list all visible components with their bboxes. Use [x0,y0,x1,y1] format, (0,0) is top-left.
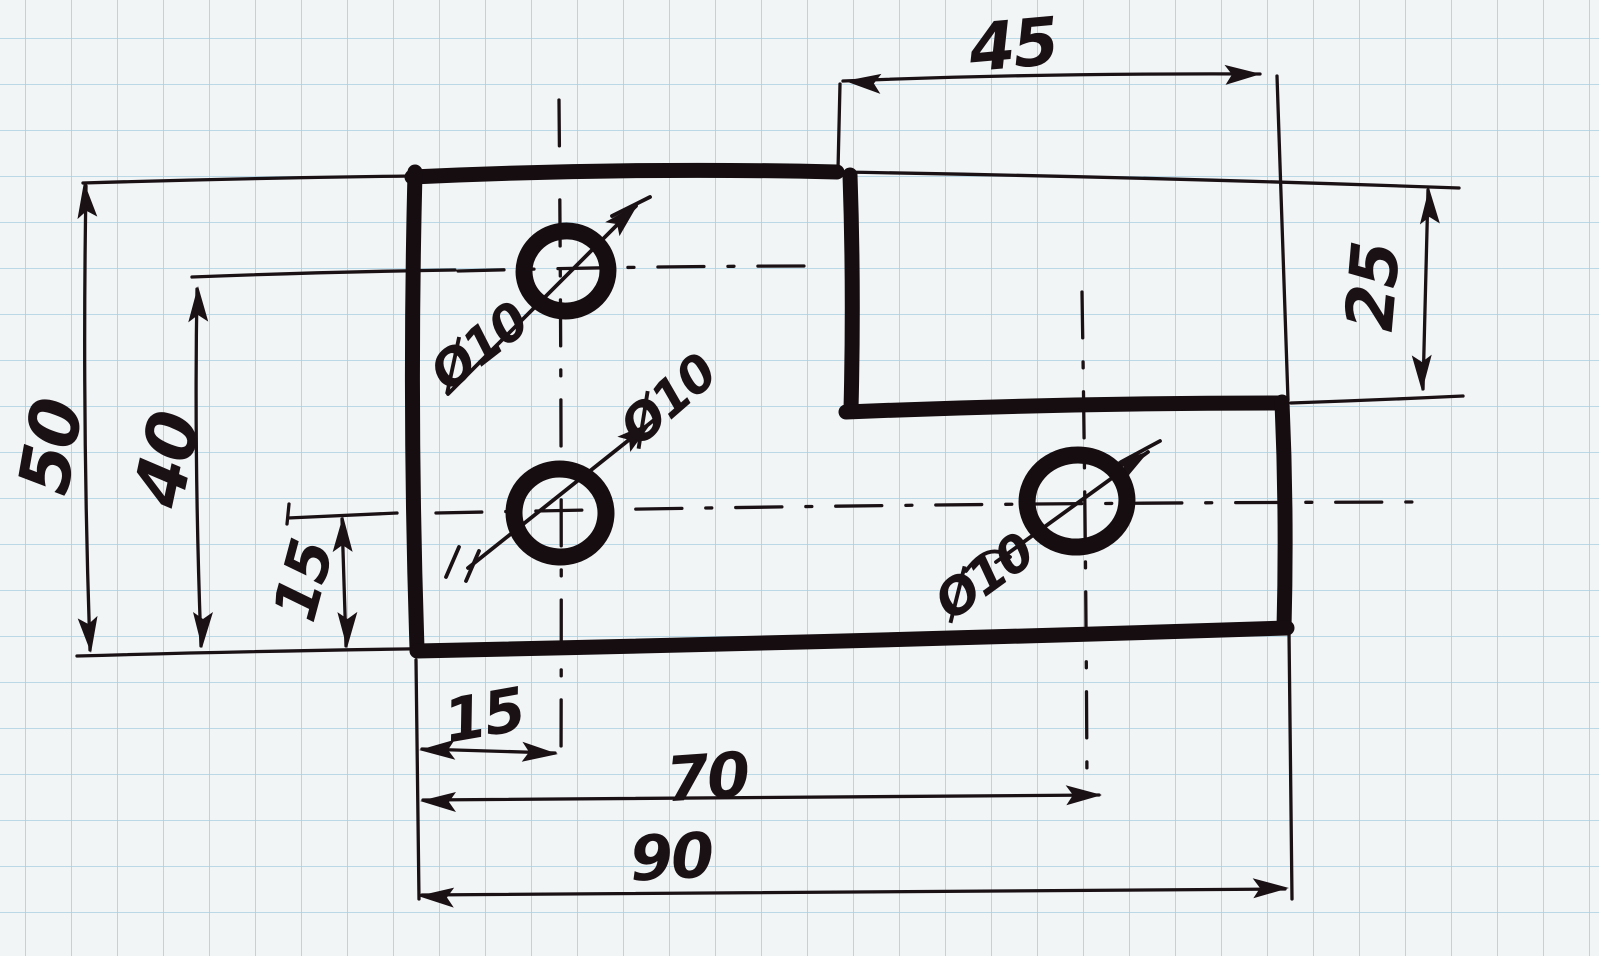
grid-lines [0,0,1599,956]
dim-70-label: 70 [663,738,750,817]
graph-paper-sheet: 45 25 50 40 15 15 70 90 Ø10 Ø10 Ø10 [0,0,1599,956]
dim-45-label: 45 [965,3,1060,87]
part-left-edge [412,172,417,648]
dim-15h-label: 15 [439,675,529,758]
ext-45-left [838,84,840,170]
dim-50-label: 50 [3,394,100,501]
part-right-edge [1282,402,1285,628]
part-step-horizontal-edge [846,403,1281,412]
sketch-drawing: 45 25 50 40 15 15 70 90 Ø10 Ø10 Ø10 [0,0,1599,956]
part-step-vertical-edge [850,175,852,409]
dim-90-label: 90 [628,818,714,895]
part-top-edge [412,170,837,177]
dim-25-label: 25 [1331,240,1415,334]
ext-15v-tick [287,504,289,524]
